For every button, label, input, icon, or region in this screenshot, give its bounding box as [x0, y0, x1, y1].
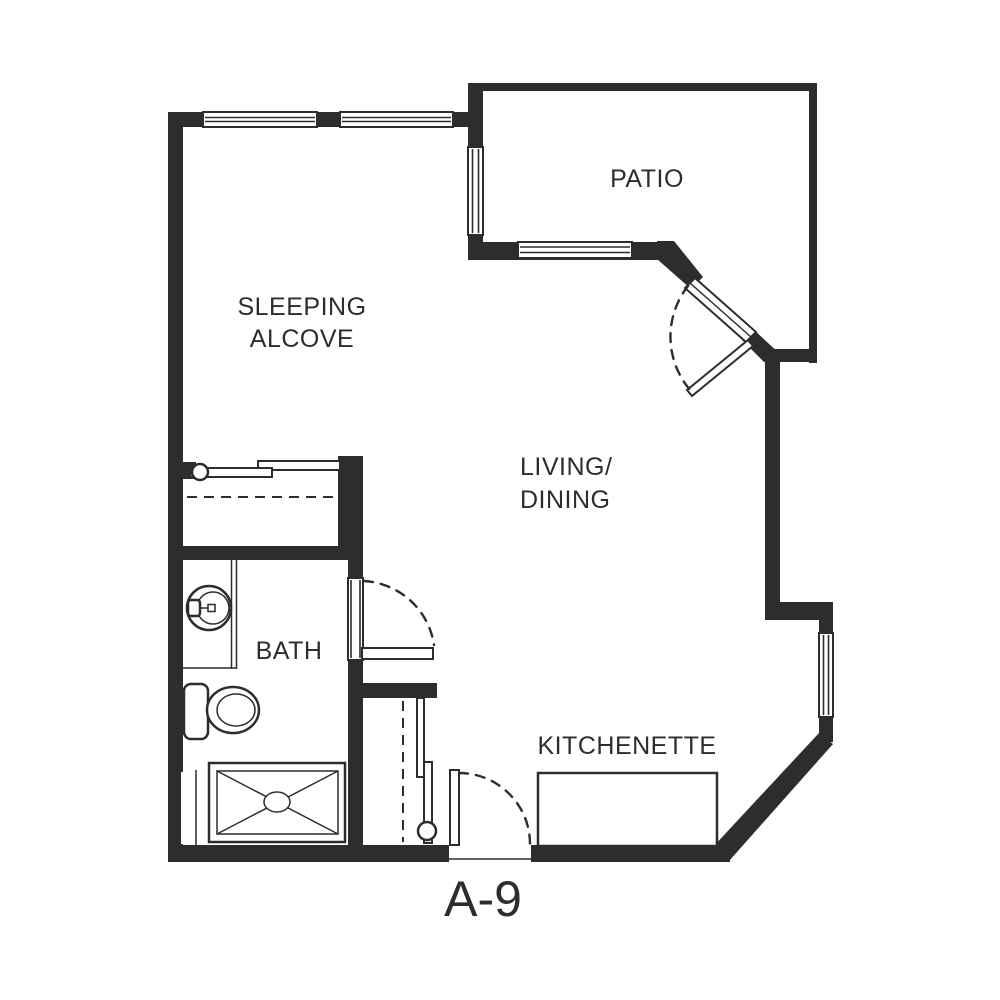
patio-door-frame-midline	[690, 283, 751, 337]
windows-group	[203, 112, 833, 717]
bath-door	[348, 578, 434, 660]
wall-right-jog	[765, 602, 833, 620]
wall-bath-top	[168, 546, 363, 560]
patio-door-swing-arc	[670, 286, 691, 391]
sink-drain	[208, 605, 215, 612]
window-top-right	[340, 112, 453, 127]
label-living-line1: LIVING/	[520, 453, 612, 481]
wall-niche	[181, 772, 194, 844]
label-bath: BATH	[256, 637, 323, 665]
entry-door-swing-arc	[459, 773, 530, 844]
wall-left	[168, 112, 183, 862]
wall-diagonal-bottom-right	[712, 733, 833, 861]
wall-patio-corner-connector	[778, 349, 817, 362]
window-patio-left	[468, 147, 483, 235]
kitchenette-fixtures	[538, 773, 717, 846]
label-kitchenette: KITCHENETTE	[537, 732, 716, 760]
patio-door-leaf	[687, 340, 753, 396]
label-sleeping-line1: SLEEPING	[237, 293, 366, 321]
sleeping-closet-door-pull	[192, 464, 208, 480]
sink-faucet	[188, 600, 200, 616]
floor-plan-page: PATIO SLEEPING ALCOVE LIVING/ DINING BAT…	[0, 0, 1000, 1000]
toilet-tank	[184, 684, 208, 739]
wall-entry-closet-north	[348, 683, 437, 698]
label-patio: PATIO	[610, 165, 684, 193]
plan-title: A-9	[444, 871, 522, 927]
sleeping-closet	[187, 461, 344, 497]
wall-closet-east-chunk	[338, 456, 363, 560]
shower-drain	[264, 792, 290, 812]
bath-door-leaf	[362, 648, 433, 659]
kitchenette-counter	[538, 773, 717, 846]
window-right	[819, 633, 833, 717]
bath-fixtures	[181, 560, 345, 846]
floor-plan-drawing: PATIO SLEEPING ALCOVE LIVING/ DINING BAT…	[0, 0, 1000, 1000]
label-living-line2: DINING	[520, 486, 611, 514]
entry-closet	[403, 698, 436, 843]
entry-closet-door-pull	[418, 822, 436, 840]
entry-door-threshold	[449, 844, 531, 863]
window-top-left	[203, 112, 317, 127]
wall-patio-right	[809, 83, 817, 363]
wall-patio-top	[468, 83, 817, 91]
wall-bath-east-upper	[348, 558, 363, 580]
window-patio-bottom	[518, 242, 632, 258]
patio-door	[670, 278, 756, 396]
bath-door-swing-arc	[364, 581, 434, 645]
entry-door-leaf	[450, 770, 459, 845]
wall-right-upper	[765, 349, 780, 603]
entry-closet-door-a	[417, 698, 424, 777]
label-sleeping-line2: ALCOVE	[250, 325, 354, 353]
entry-door	[449, 770, 531, 863]
